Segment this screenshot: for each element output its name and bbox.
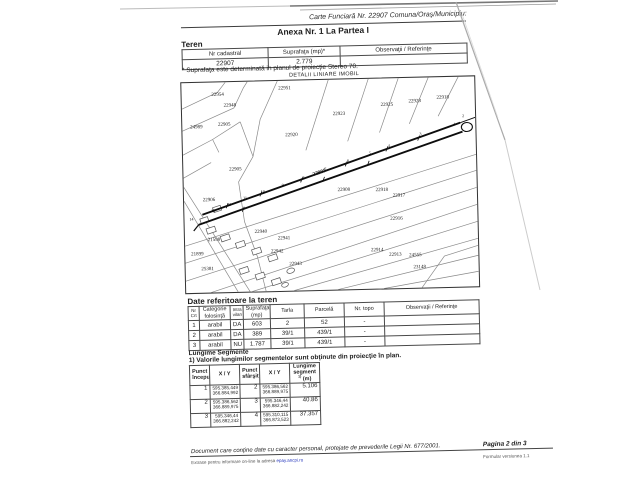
- parcel-label: 22941: [278, 236, 291, 241]
- parcel-label: 25381: [201, 267, 214, 272]
- extras-note: Extrase pentru informare on-line la adre…: [191, 457, 303, 465]
- col-nr-topo: Nr. topo: [344, 302, 384, 317]
- table-row: 3 595.346,44366.882,242 4 595.310,115366…: [191, 411, 321, 428]
- parcel-label: 22928: [408, 99, 421, 104]
- parcel-label: 22951: [278, 86, 291, 91]
- parcel-label: 22918: [376, 188, 389, 193]
- parcel-label: 22914: [371, 248, 384, 253]
- point-number: 12: [227, 202, 231, 207]
- point-number: 3: [419, 131, 421, 136]
- col-parcela: Parcelă: [304, 303, 344, 318]
- parcel-label: 24989: [190, 125, 203, 130]
- parcel-label: 22925: [381, 103, 394, 108]
- parcel-label: 22920: [285, 133, 298, 138]
- point-number: 7: [324, 166, 326, 171]
- parcel-label: 22908: [338, 188, 351, 193]
- parcel-label: 21598: [208, 238, 221, 243]
- page-number: Pagina 2 din 3: [483, 440, 527, 448]
- col-intravilan: Intra vilan: [230, 305, 243, 319]
- parcel-label: 22943: [289, 262, 302, 267]
- scanned-document-page: Carte Funciară Nr. 22907 Comuna/Oraş/Mun…: [0, 0, 640, 480]
- date-teren-table: Nr Crt Categorie folosinţă Intra vilan S…: [188, 299, 481, 351]
- parcel-label: 21899: [191, 252, 204, 257]
- point-number: 6: [347, 158, 349, 163]
- parcel-label: 22940: [254, 230, 267, 235]
- parcel-label: 24555: [409, 253, 422, 258]
- parcel-label: 22905: [218, 123, 231, 128]
- point-number: 10: [261, 189, 265, 194]
- col-tarla: Tarla: [270, 304, 304, 319]
- parcel-label: 22954: [211, 93, 224, 98]
- col-nr-crt: Nr Crt: [188, 306, 199, 320]
- point-number: 13: [211, 208, 215, 213]
- point-number: 4: [388, 143, 390, 148]
- cadastral-map: 2295122954229482498922905229232292522928…: [180, 75, 480, 294]
- point-number: 9: [282, 182, 284, 187]
- parcel-label: 23148: [413, 265, 426, 270]
- parcel-label: 22916: [390, 217, 403, 222]
- parcel-label: 22942: [271, 249, 284, 254]
- col-punct-inceput: Punct început: [189, 365, 209, 385]
- col-xy-start: X / Y: [209, 364, 239, 385]
- point-number: 5: [369, 150, 371, 155]
- parcel-label: 22905: [229, 167, 242, 172]
- epay-link: epay.ancpi.ro: [276, 457, 303, 463]
- parcel-label: 22923: [333, 112, 346, 117]
- form-version: Formular versiunea 1.1: [483, 453, 529, 459]
- carte-funciara-note: Carte Funciară Nr. 22907 Comuna/Oraş/Mun…: [309, 10, 467, 21]
- parcel-label: 22948: [224, 103, 237, 108]
- parcel-label: 22917: [393, 193, 406, 198]
- col-categorie: Categorie folosinţă: [199, 306, 230, 321]
- point-number: 1: [453, 121, 455, 126]
- observatii-value: [340, 53, 467, 66]
- point-number: 2: [462, 113, 464, 118]
- point-number: 14: [189, 216, 193, 221]
- col-suprafata-mp: Suprafaţa (mp): [243, 305, 270, 320]
- anexa-title: Anexa Nr. 1 La Partea I: [0, 18, 640, 43]
- point-number: 8: [302, 175, 304, 180]
- point-number: 11: [243, 195, 247, 200]
- col-punct-sfarsit: Punct sfârşit: [239, 364, 259, 384]
- lungime-segmente-table: Punct început X / Y Punct sfârşit X / Y …: [189, 362, 321, 428]
- parcel-label: 22906: [203, 198, 216, 203]
- col-xy-end: X / Y: [259, 363, 289, 384]
- parcel-label: 22918: [436, 95, 449, 100]
- map-annotations: 2295122954229482498922905229232292522928…: [181, 76, 479, 293]
- col-lungime: Lungime segment1) (m): [289, 363, 319, 384]
- parcel-label: 22913: [389, 253, 402, 258]
